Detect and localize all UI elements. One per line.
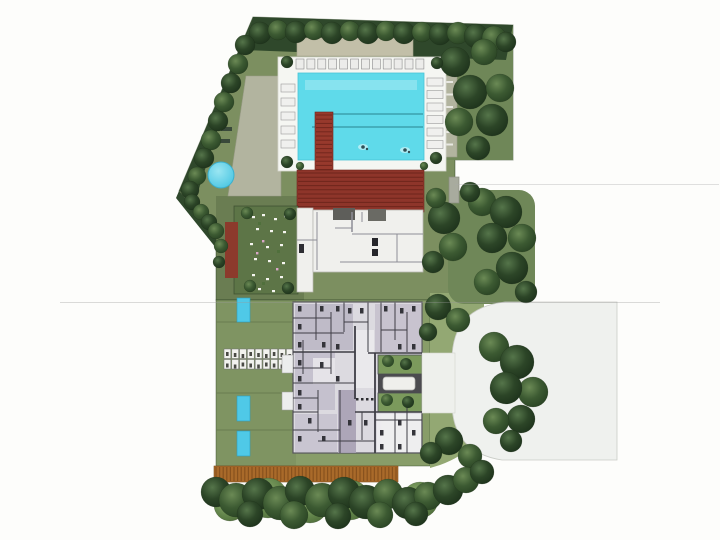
furniture-mark xyxy=(380,444,384,450)
furniture-mark xyxy=(384,306,388,312)
tree xyxy=(515,281,537,303)
garden-chair xyxy=(258,288,261,290)
sun-lounger xyxy=(427,116,443,124)
tree xyxy=(483,408,509,434)
sun-lounger xyxy=(427,103,443,111)
tree xyxy=(213,256,225,268)
tree xyxy=(445,108,473,136)
patio-tab xyxy=(282,355,293,373)
sun-lounger xyxy=(281,84,295,92)
furniture-mark xyxy=(298,404,302,410)
tree xyxy=(496,252,528,284)
garden-chair xyxy=(252,274,255,276)
garden-chair xyxy=(268,260,271,262)
garden-structure xyxy=(449,177,459,203)
tree xyxy=(420,442,442,464)
sun-lounger xyxy=(296,59,304,69)
entry-pad xyxy=(422,353,455,413)
tree xyxy=(466,136,490,160)
lounger-mark xyxy=(257,353,260,357)
furniture-mark xyxy=(398,444,402,450)
plunge-pool xyxy=(237,431,250,456)
furniture-mark xyxy=(298,376,302,382)
tree xyxy=(496,32,516,52)
lounger-mark xyxy=(226,364,229,368)
clubhouse-entry-recess xyxy=(368,209,386,221)
furniture-mark xyxy=(412,306,416,312)
sun-lounger xyxy=(281,126,295,134)
tree xyxy=(221,73,241,93)
garden-chair xyxy=(272,290,275,292)
tree xyxy=(477,223,507,253)
red-timber-deck xyxy=(297,170,424,212)
tree xyxy=(235,35,255,55)
plunge-pool xyxy=(237,396,250,421)
tree xyxy=(476,104,508,136)
tree xyxy=(471,39,497,65)
sun-lounger xyxy=(427,128,443,136)
tree xyxy=(490,372,522,404)
sun-lounger xyxy=(372,59,380,69)
sun-lounger xyxy=(351,59,359,69)
furniture-mark xyxy=(322,342,326,348)
tree xyxy=(486,74,514,102)
tree xyxy=(404,502,428,526)
tree xyxy=(241,207,253,219)
lounger-mark xyxy=(273,364,276,368)
garden-chair xyxy=(282,262,285,264)
clubhouse-furniture xyxy=(372,238,378,246)
tree xyxy=(431,57,443,69)
sun-lounger xyxy=(394,59,402,69)
tree xyxy=(357,22,379,44)
shrub xyxy=(262,282,265,285)
furniture-mark xyxy=(298,390,302,396)
tree xyxy=(439,233,467,261)
lounger-mark xyxy=(226,352,229,356)
sun-lounger xyxy=(340,59,348,69)
tree xyxy=(518,377,548,407)
furniture-mark xyxy=(320,362,324,368)
pool-highlight xyxy=(305,80,417,90)
garden-chair xyxy=(283,231,286,233)
sun-lounger xyxy=(427,78,443,86)
site-plan-page xyxy=(0,0,720,540)
furniture-mark xyxy=(348,420,352,426)
lounger-mark xyxy=(265,363,268,367)
sun-lounger xyxy=(281,98,295,106)
shrub xyxy=(258,222,261,225)
plunge-pool xyxy=(237,298,250,322)
furniture-mark xyxy=(298,360,302,366)
lounger-mark xyxy=(265,354,268,358)
sun-lounger xyxy=(427,141,443,149)
tree xyxy=(500,430,522,452)
furniture-mark xyxy=(322,436,326,442)
tree xyxy=(194,148,214,168)
furniture-mark xyxy=(412,430,416,436)
tree xyxy=(281,56,293,68)
sun-lounger xyxy=(281,112,295,120)
sun-lounger xyxy=(427,91,443,99)
lounger-mark xyxy=(242,354,245,358)
tree xyxy=(426,188,446,208)
spa-fountain xyxy=(208,162,234,188)
swimmer xyxy=(408,151,410,153)
furniture-mark xyxy=(360,308,364,314)
tree xyxy=(325,503,351,529)
tree xyxy=(208,223,224,239)
furniture-mark xyxy=(336,344,340,350)
garden-chair xyxy=(266,246,269,248)
lounger-mark xyxy=(257,365,260,369)
tree xyxy=(281,156,293,168)
lounger-mark xyxy=(234,365,237,369)
tree xyxy=(214,92,234,112)
tree xyxy=(508,224,536,252)
lounger-mark xyxy=(249,364,252,368)
shrub xyxy=(277,250,280,253)
garden-chair xyxy=(250,243,253,245)
furniture-mark xyxy=(398,420,402,426)
furniture-mark xyxy=(298,342,302,348)
tree xyxy=(440,47,470,77)
sun-lounger xyxy=(405,59,413,69)
garden-chair xyxy=(256,228,259,230)
furniture-mark xyxy=(348,308,352,314)
tree xyxy=(453,75,487,109)
tree xyxy=(430,152,442,164)
garden-chair xyxy=(266,278,269,280)
tree xyxy=(393,22,415,44)
tree xyxy=(284,208,296,220)
tree xyxy=(422,251,444,273)
tree xyxy=(282,282,294,294)
clubhouse-furniture xyxy=(299,244,304,253)
lounger-mark xyxy=(242,363,245,367)
garden-chair xyxy=(254,258,257,260)
sun-lounger xyxy=(329,59,337,69)
swimmer xyxy=(361,145,365,149)
sun-lounger xyxy=(307,59,315,69)
flower xyxy=(262,240,264,242)
sun-lounger xyxy=(416,59,424,69)
entry-canopy xyxy=(383,377,415,390)
tree xyxy=(208,111,228,131)
swimmer xyxy=(366,148,368,150)
lounger-mark xyxy=(234,353,237,357)
furniture-mark xyxy=(336,306,340,312)
tree xyxy=(470,460,494,484)
tree xyxy=(285,21,307,43)
furniture-mark xyxy=(400,308,404,314)
sun-lounger xyxy=(361,59,369,69)
lounger-mark xyxy=(273,352,276,356)
lounger-mark xyxy=(249,352,252,356)
tree xyxy=(201,130,221,150)
sun-lounger xyxy=(281,140,295,148)
garden-chair xyxy=(280,276,283,278)
tree xyxy=(446,308,470,332)
tree xyxy=(367,502,393,528)
tree xyxy=(214,239,228,253)
garden-chair xyxy=(252,216,255,218)
north-pergola xyxy=(297,38,413,56)
tree xyxy=(228,54,248,74)
tree xyxy=(244,280,256,292)
tree xyxy=(304,20,324,40)
furniture-mark xyxy=(380,430,384,436)
patio-tab xyxy=(282,392,293,410)
furniture-mark xyxy=(320,306,324,312)
tree xyxy=(280,501,308,529)
clubhouse-furniture xyxy=(372,249,378,256)
tree xyxy=(321,22,343,44)
furniture-mark xyxy=(298,436,302,442)
site-plan-rendering xyxy=(0,0,720,540)
garden-chair xyxy=(262,214,265,216)
sun-lounger xyxy=(383,59,391,69)
furniture-mark xyxy=(298,306,302,312)
tree xyxy=(507,405,535,433)
furniture-mark xyxy=(298,324,302,330)
flower xyxy=(256,252,258,254)
tree xyxy=(474,269,500,295)
tree xyxy=(296,162,304,170)
tree xyxy=(420,162,428,170)
furniture-mark xyxy=(412,344,416,350)
furniture-mark xyxy=(336,376,340,382)
swimmer xyxy=(403,148,407,152)
garden-chair xyxy=(274,218,277,220)
tree xyxy=(237,501,263,527)
furniture-mark xyxy=(364,420,368,426)
flower xyxy=(276,268,278,270)
furniture-mark xyxy=(308,418,312,424)
sun-lounger xyxy=(318,59,326,69)
garden-chair xyxy=(270,230,273,232)
furniture-mark xyxy=(398,344,402,350)
tree xyxy=(419,323,437,341)
garden-chair xyxy=(280,244,283,246)
lawn-shade-overlay xyxy=(216,300,296,466)
red-walkway-pier xyxy=(315,112,333,172)
